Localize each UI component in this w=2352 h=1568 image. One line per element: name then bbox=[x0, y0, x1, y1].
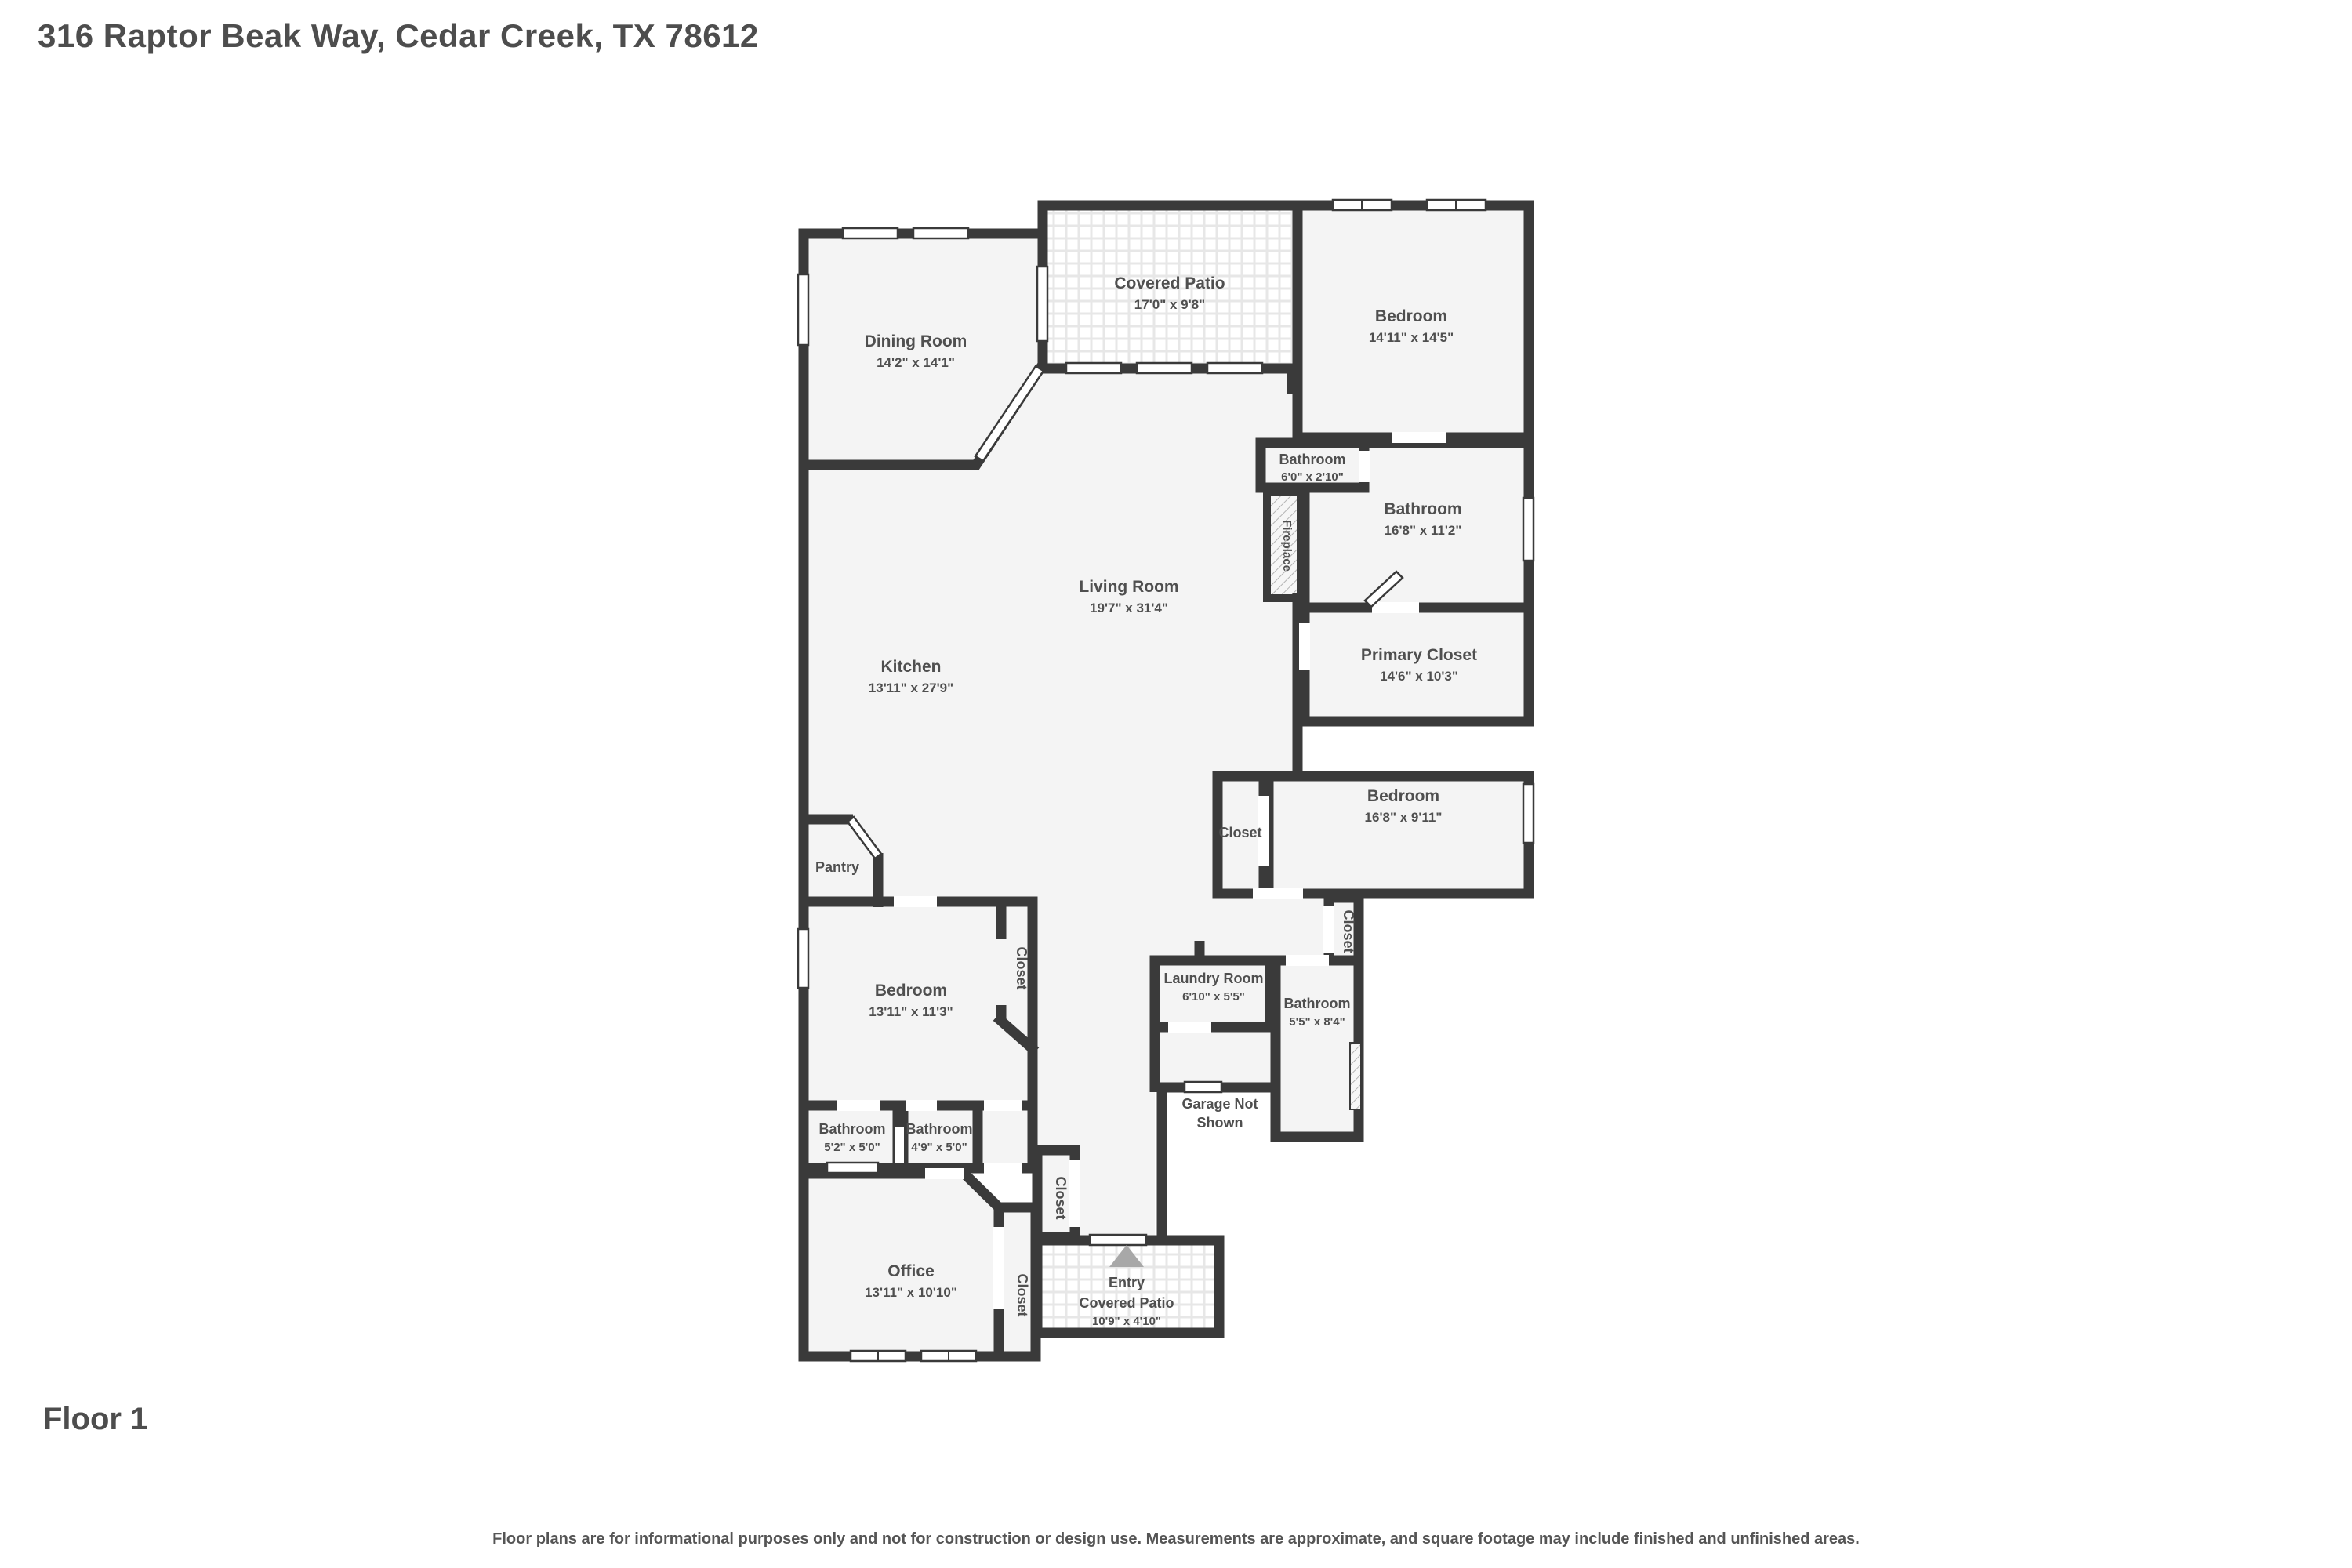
mud-corridor-area bbox=[1155, 1027, 1276, 1087]
bathroom-hall-label: Bathroom bbox=[1284, 996, 1351, 1011]
covered-patio-label: Covered Patio bbox=[1114, 274, 1225, 292]
bathroom-small-label: Bathroom bbox=[1279, 452, 1346, 467]
floor-plan-page: 316 Raptor Beak Way, Cedar Creek, TX 786… bbox=[0, 0, 2352, 1568]
bathroom-primary-label: Bathroom bbox=[1384, 500, 1461, 518]
bathroom-b-label: Bathroom bbox=[906, 1121, 973, 1137]
entry-label: Entry bbox=[1109, 1275, 1145, 1290]
bedroom-lower-label: Bedroom bbox=[875, 982, 947, 1000]
closet-mid-label: Closet bbox=[1218, 825, 1261, 840]
disclaimer-text: Floor plans are for informational purpos… bbox=[0, 1530, 2352, 1548]
living-room-label: Living Room bbox=[1079, 578, 1178, 596]
covered-patio-dims: 17'0" x 9'8" bbox=[1134, 297, 1205, 312]
primary-closet bbox=[1305, 608, 1529, 721]
garage-note-line1: Garage Not bbox=[1181, 1096, 1258, 1112]
bathroom-b bbox=[903, 1105, 978, 1168]
closet-bedroom-label: Closet bbox=[1014, 946, 1029, 989]
living-room-dims: 19'7" x 31'4" bbox=[1090, 601, 1168, 615]
pantry-label: Pantry bbox=[815, 859, 859, 875]
bedroom-mid-label: Bedroom bbox=[1367, 787, 1439, 805]
kitchen-dims: 13'11" x 27'9" bbox=[869, 681, 953, 695]
office-label: Office bbox=[887, 1262, 935, 1280]
laundry-room-label: Laundry Room bbox=[1163, 971, 1263, 986]
utility-hatch bbox=[1350, 1043, 1361, 1109]
closet-hall-label: Closet bbox=[1341, 909, 1356, 953]
garage-note-line2: Shown bbox=[1197, 1115, 1243, 1131]
bedroom-top-label: Bedroom bbox=[1375, 307, 1447, 325]
dining-room-label: Dining Room bbox=[865, 332, 967, 350]
closet-entry-label: Closet bbox=[1053, 1176, 1069, 1219]
bathroom-hall-dims: 5'5" x 8'4" bbox=[1289, 1015, 1345, 1029]
bathroom-b-dims: 4'9" x 5'0" bbox=[911, 1141, 967, 1154]
entry-dims: 10'9" x 4'10" bbox=[1092, 1315, 1161, 1328]
hall-strip bbox=[978, 1105, 1033, 1168]
bathroom-primary-dims: 16'8" x 11'2" bbox=[1385, 523, 1462, 538]
bathroom-a bbox=[804, 1105, 898, 1168]
fireplace-label: Fireplace bbox=[1280, 520, 1294, 572]
bedroom-top-dims: 14'11" x 14'5" bbox=[1369, 330, 1454, 345]
laundry-room-dims: 6'10" x 5'5" bbox=[1182, 990, 1245, 1004]
bathroom-a-dims: 5'2" x 5'0" bbox=[824, 1141, 880, 1154]
office-dims: 13'11" x 10'10" bbox=[865, 1285, 957, 1300]
bathroom-a-label: Bathroom bbox=[819, 1121, 886, 1137]
bathroom-small-dims: 6'0" x 2'10" bbox=[1281, 470, 1344, 484]
dining-room-dims: 14'2" x 14'1" bbox=[877, 355, 955, 370]
bedroom-lower-dims: 13'11" x 11'3" bbox=[869, 1004, 953, 1019]
closet-office-label: Closet bbox=[1014, 1273, 1030, 1316]
primary-closet-label: Primary Closet bbox=[1361, 646, 1477, 664]
bathroom-hall bbox=[1276, 960, 1359, 1137]
floor-plan-svg: Dining Room 14'2" x 14'1" Covered Patio … bbox=[0, 0, 2352, 1568]
entry-label2: Covered Patio bbox=[1079, 1295, 1174, 1311]
kitchen-label: Kitchen bbox=[880, 658, 941, 676]
primary-closet-dims: 14'6" x 10'3" bbox=[1380, 669, 1458, 684]
bedroom-mid-dims: 16'8" x 9'11" bbox=[1365, 810, 1443, 825]
floor-label: Floor 1 bbox=[43, 1402, 147, 1437]
